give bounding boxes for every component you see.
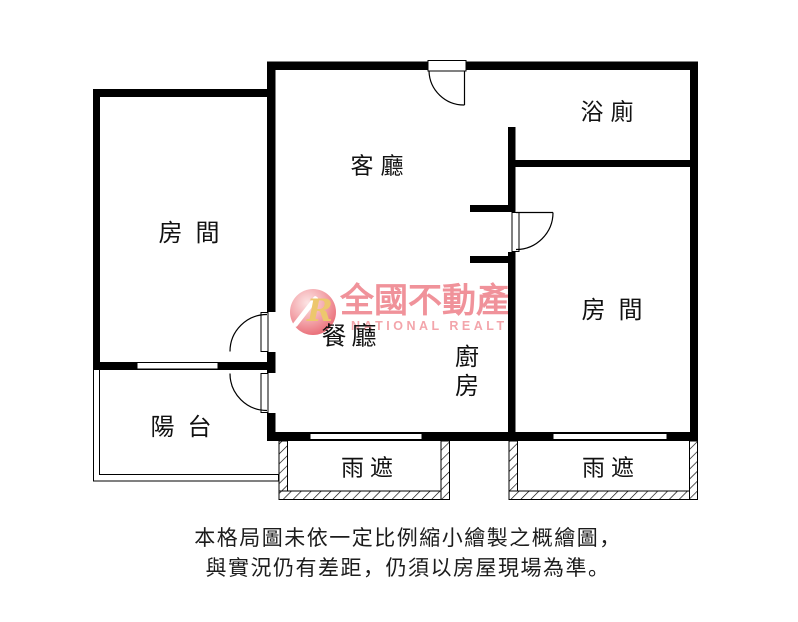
wall-bedroom-left-side: [93, 89, 100, 367]
living-room-label: 客廳: [344, 156, 411, 179]
bedroom-right-label: 房間: [569, 298, 656, 322]
wall-bedroom-right-side: [508, 127, 516, 441]
disclaimer-line-2: 與實況仍有差距，仍須以房屋現場為準。: [194, 554, 622, 584]
canopy-right-wall-b: [509, 491, 698, 500]
window-living-bottom: [310, 434, 422, 440]
window-bedroom-right-bottom: [553, 434, 667, 440]
entry-door-opening: [428, 61, 466, 72]
bedroom-right-door-arc: [516, 213, 553, 250]
wall-main-right: [690, 62, 698, 442]
disclaimer-line-1: 本格局圖未依一定比例縮小繪製之概繪圖，: [194, 524, 622, 554]
bedroom-left-label: 房間: [146, 221, 233, 245]
bedroom-left-door-leaf: [261, 313, 268, 352]
canopy-right-label: 雨遮: [576, 458, 640, 481]
wall-kitchen-stub-bottom: [470, 256, 508, 263]
balcony-label: 陽台: [138, 415, 225, 439]
doors: [230, 71, 553, 413]
dining-room-label: 餐廳: [316, 324, 381, 349]
wall-kitchen-stub-top: [470, 205, 508, 212]
canopy-left-label: 雨遮: [335, 458, 399, 481]
disclaimer: 本格局圖未依一定比例縮小繪製之概繪圖， 與實況仍有差距，仍須以房屋現場為準。: [194, 524, 622, 584]
wall-bedroom-left-top: [93, 89, 275, 97]
canopy-left-wall-r: [441, 441, 450, 500]
wall-main-top: [267, 62, 698, 71]
kitchen-label: 廚房: [454, 343, 481, 401]
bathroom-label: 浴廁: [574, 102, 641, 125]
entry-door-arc: [429, 71, 465, 105]
bedroom-right-door-leaf: [512, 213, 519, 252]
canopy-left-wall-b: [279, 491, 450, 500]
wall-bathroom-bottom: [508, 160, 698, 167]
canopy-right-wall-r: [690, 441, 698, 500]
balcony-door-leaf: [261, 374, 268, 413]
floor-plan-page: R 全國不動產 NATIONAL REALTY: [0, 0, 798, 622]
window-bedroom-balcony: [137, 363, 218, 370]
